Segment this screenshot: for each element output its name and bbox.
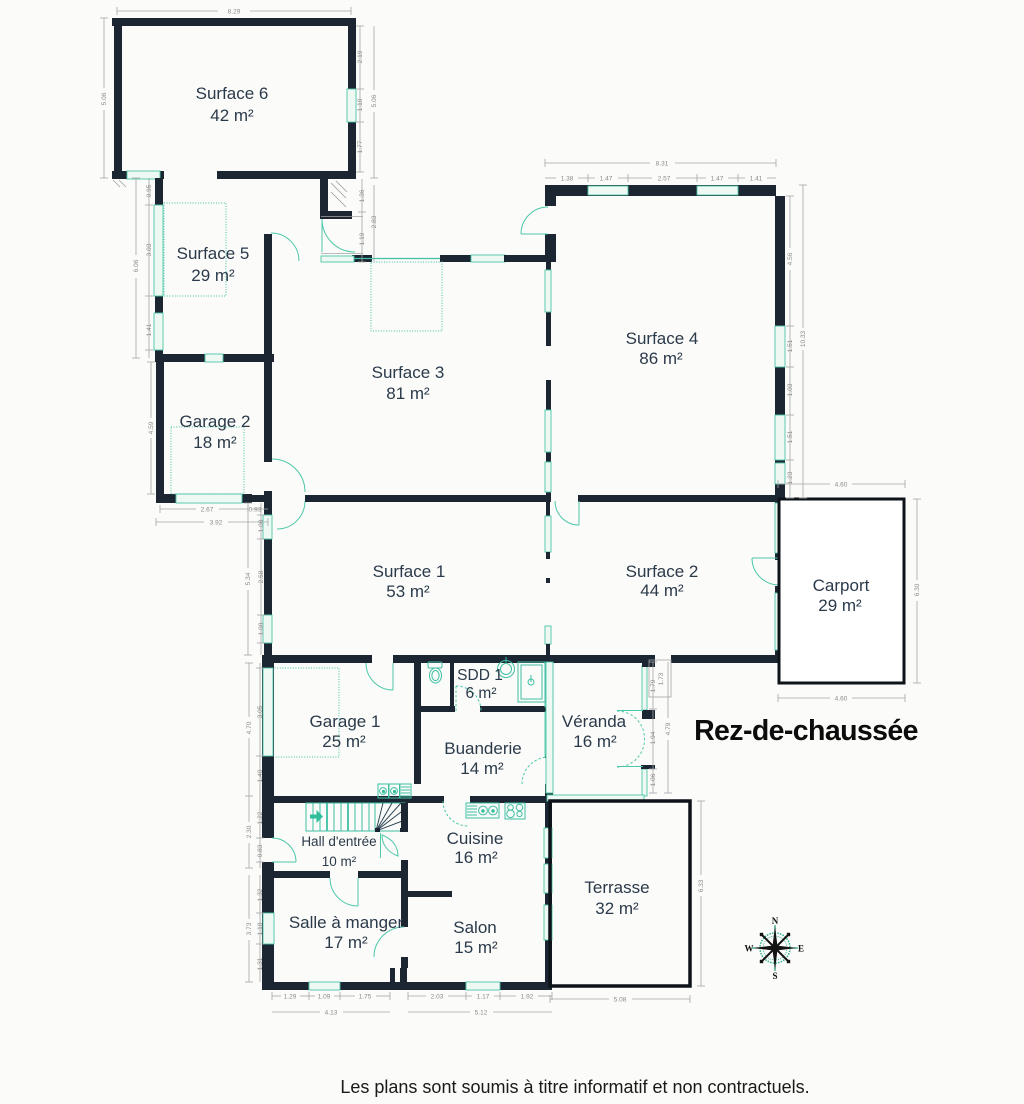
svg-text:1.94: 1.94 xyxy=(650,731,657,744)
svg-text:29 m²: 29 m² xyxy=(818,596,862,615)
svg-text:W: W xyxy=(745,944,754,954)
svg-text:4.59: 4.59 xyxy=(148,421,155,434)
svg-text:4.60: 4.60 xyxy=(835,482,848,489)
svg-text:0.95: 0.95 xyxy=(146,184,153,197)
svg-text:SDD 1: SDD 1 xyxy=(457,667,503,684)
svg-text:1.29: 1.29 xyxy=(284,994,297,1001)
svg-text:Surface 6: Surface 6 xyxy=(196,84,269,103)
svg-text:1.47: 1.47 xyxy=(600,176,613,183)
svg-text:8.31: 8.31 xyxy=(656,161,669,168)
svg-text:4.70: 4.70 xyxy=(246,721,253,734)
svg-text:Salon: Salon xyxy=(453,918,496,937)
svg-text:E: E xyxy=(798,944,804,954)
svg-text:1.73: 1.73 xyxy=(658,672,665,685)
svg-text:1.40: 1.40 xyxy=(257,769,264,782)
svg-text:Garage 2: Garage 2 xyxy=(180,412,251,431)
svg-text:1.31: 1.31 xyxy=(257,957,264,970)
svg-text:Carport: Carport xyxy=(813,576,870,595)
svg-text:5.12: 5.12 xyxy=(475,1010,488,1017)
svg-text:1.23: 1.23 xyxy=(787,471,794,484)
svg-text:1.00: 1.00 xyxy=(258,519,265,532)
svg-text:Cuisine: Cuisine xyxy=(447,829,504,848)
svg-text:3.03: 3.03 xyxy=(146,243,153,256)
svg-text:16 m²: 16 m² xyxy=(454,848,498,867)
svg-text:4.60: 4.60 xyxy=(835,696,848,703)
svg-text:3.92: 3.92 xyxy=(210,520,223,527)
svg-text:1.75: 1.75 xyxy=(359,994,372,1001)
svg-text:2.83: 2.83 xyxy=(371,215,378,228)
svg-text:Surface 4: Surface 4 xyxy=(626,329,699,348)
svg-text:1.10: 1.10 xyxy=(257,922,264,935)
svg-text:1.51: 1.51 xyxy=(787,339,794,352)
svg-text:Terrasse: Terrasse xyxy=(584,878,649,897)
svg-text:1.03: 1.03 xyxy=(787,383,794,396)
svg-text:86 m²: 86 m² xyxy=(639,349,683,368)
svg-text:25 m²: 25 m² xyxy=(322,732,366,751)
svg-text:1.36: 1.36 xyxy=(359,189,366,202)
svg-text:1.10: 1.10 xyxy=(357,98,364,111)
svg-text:Hall d'entrée: Hall d'entrée xyxy=(301,834,376,849)
svg-text:2.30: 2.30 xyxy=(246,825,253,838)
svg-text:6.30: 6.30 xyxy=(914,583,921,596)
svg-text:5.08: 5.08 xyxy=(614,997,627,1004)
svg-text:Rez-de-chaussée: Rez-de-chaussée xyxy=(694,715,918,747)
svg-text:5.34: 5.34 xyxy=(245,572,252,585)
svg-text:N: N xyxy=(772,916,779,926)
svg-text:6.33: 6.33 xyxy=(698,879,705,892)
svg-text:1.77: 1.77 xyxy=(357,140,364,153)
svg-text:Salle à manger: Salle à manger xyxy=(289,913,404,932)
svg-text:3.73: 3.73 xyxy=(246,922,253,935)
svg-text:2.58: 2.58 xyxy=(258,570,265,583)
svg-text:Véranda: Véranda xyxy=(562,712,627,731)
svg-text:2.03: 2.03 xyxy=(431,994,444,1001)
svg-text:Surface 2: Surface 2 xyxy=(626,562,699,581)
svg-text:0.93: 0.93 xyxy=(249,507,262,514)
svg-text:6 m²: 6 m² xyxy=(466,685,497,702)
svg-text:10.33: 10.33 xyxy=(800,330,807,347)
svg-text:1.32: 1.32 xyxy=(257,888,264,901)
svg-text:1.41: 1.41 xyxy=(750,176,763,183)
svg-text:5.06: 5.06 xyxy=(371,94,378,107)
svg-text:2.67: 2.67 xyxy=(201,507,214,514)
svg-text:6.06: 6.06 xyxy=(133,259,140,272)
svg-text:14 m²: 14 m² xyxy=(460,759,504,778)
svg-text:1.79: 1.79 xyxy=(650,679,657,692)
svg-text:Surface 5: Surface 5 xyxy=(177,244,250,263)
svg-text:10 m²: 10 m² xyxy=(322,854,357,869)
svg-text:1.92: 1.92 xyxy=(521,994,534,1001)
svg-text:1.41: 1.41 xyxy=(146,323,153,336)
svg-text:4.13: 4.13 xyxy=(325,1010,338,1017)
svg-text:3.05: 3.05 xyxy=(257,705,264,718)
svg-text:1.19: 1.19 xyxy=(359,232,366,245)
svg-text:16 m²: 16 m² xyxy=(573,732,617,751)
svg-text:0.83: 0.83 xyxy=(257,844,264,857)
svg-text:1.38: 1.38 xyxy=(561,176,574,183)
svg-text:18 m²: 18 m² xyxy=(193,433,237,452)
svg-text:81 m²: 81 m² xyxy=(386,384,430,403)
svg-text:53 m²: 53 m² xyxy=(386,582,430,601)
svg-text:42 m²: 42 m² xyxy=(210,106,254,125)
svg-text:17 m²: 17 m² xyxy=(324,933,368,952)
svg-text:1.00: 1.00 xyxy=(258,622,265,635)
svg-text:Surface 1: Surface 1 xyxy=(373,562,446,581)
svg-text:4.56: 4.56 xyxy=(787,252,794,265)
svg-text:1.17: 1.17 xyxy=(477,994,490,1001)
svg-text:Garage 1: Garage 1 xyxy=(310,712,381,731)
svg-text:1.22: 1.22 xyxy=(257,811,264,824)
svg-text:2.19: 2.19 xyxy=(357,50,364,63)
svg-text:2.57: 2.57 xyxy=(658,176,671,183)
svg-text:1.09: 1.09 xyxy=(318,994,331,1001)
svg-text:Surface 3: Surface 3 xyxy=(372,363,445,382)
svg-text:8.29: 8.29 xyxy=(228,9,241,16)
svg-text:15 m²: 15 m² xyxy=(454,938,498,957)
svg-text:1.47: 1.47 xyxy=(711,176,724,183)
svg-text:1.06: 1.06 xyxy=(650,773,657,786)
svg-text:32 m²: 32 m² xyxy=(595,899,639,918)
svg-text:Buanderie: Buanderie xyxy=(444,739,522,758)
svg-text:5.06: 5.06 xyxy=(101,92,108,105)
svg-text:S: S xyxy=(772,971,777,981)
svg-text:44 m²: 44 m² xyxy=(640,581,684,600)
svg-text:Les plans sont soumis à titre: Les plans sont soumis à titre informatif… xyxy=(340,1077,809,1097)
svg-text:29 m²: 29 m² xyxy=(191,266,235,285)
svg-text:4.79: 4.79 xyxy=(665,722,672,735)
svg-text:1.51: 1.51 xyxy=(787,430,794,443)
